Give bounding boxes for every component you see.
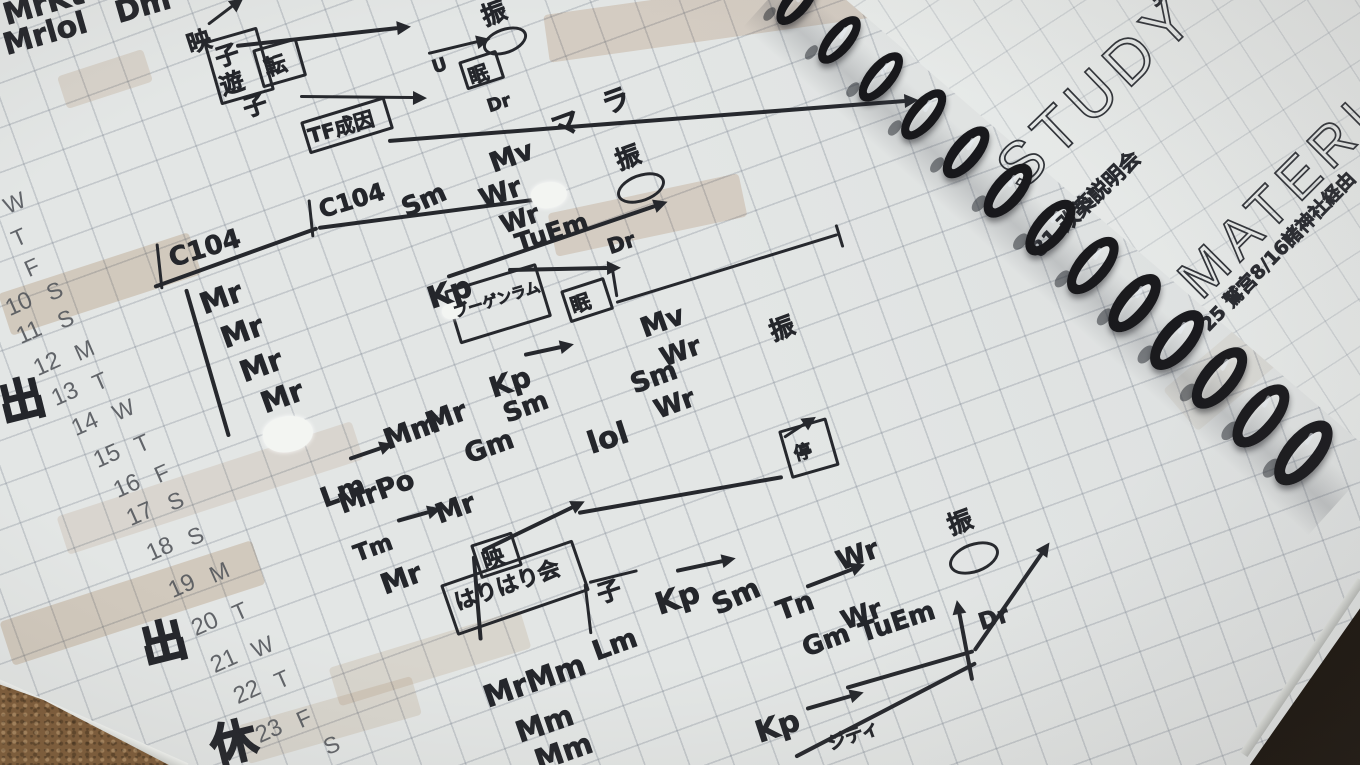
- notebook-photo: WTF10S11S12M13T14W15T16F17S18S19M20T21W2…: [0, 0, 1360, 765]
